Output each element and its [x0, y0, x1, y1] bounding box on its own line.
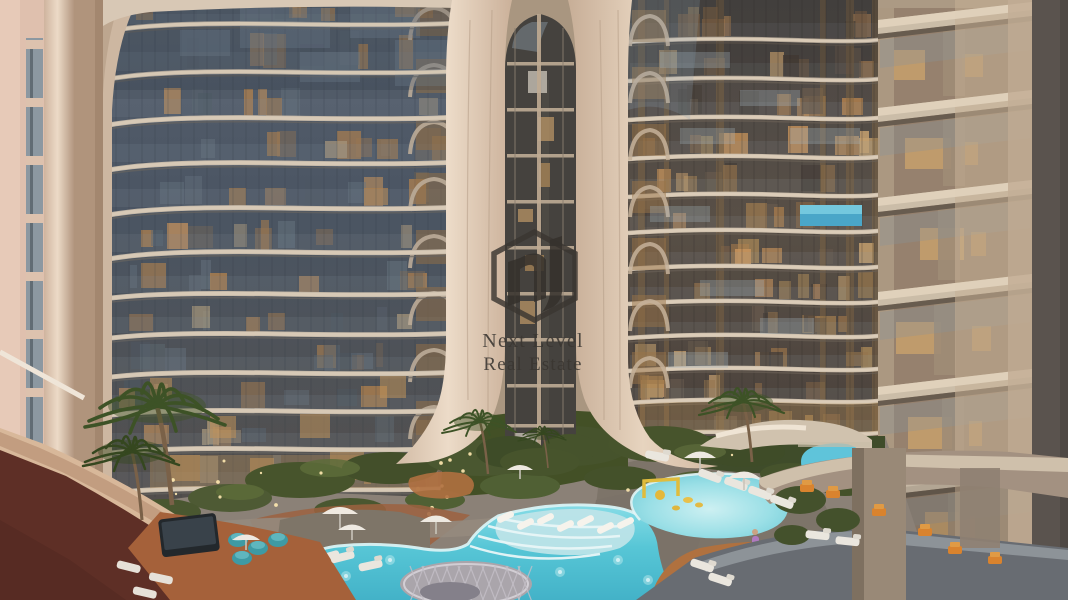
svg-text:Real Estate: Real Estate [483, 354, 582, 375]
svg-text:Next Level: Next Level [482, 330, 583, 352]
